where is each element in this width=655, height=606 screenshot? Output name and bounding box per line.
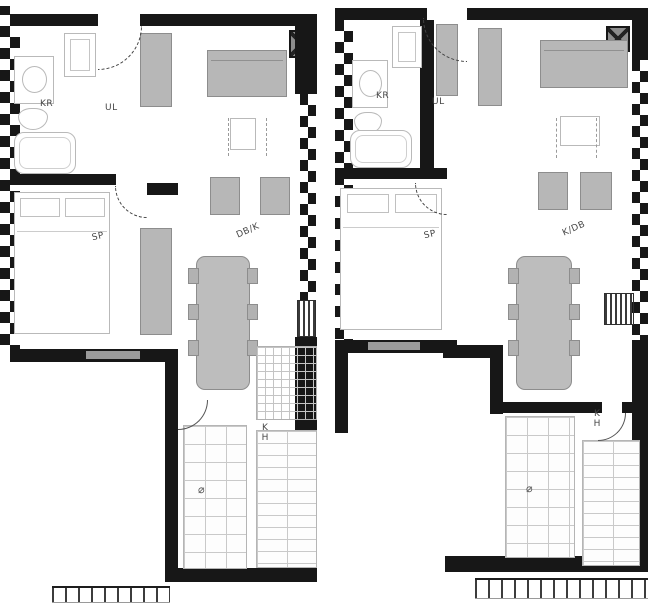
wardrobe [140,33,172,107]
dashed-line [266,118,267,156]
bed [340,188,442,330]
window-strip [632,60,648,340]
wall-top [467,8,632,20]
armchair [210,177,240,215]
wall-right-edge-top [632,8,648,60]
chair [508,304,519,320]
washing-machine [64,33,96,77]
armchair [580,172,612,210]
shower-grid [256,346,317,420]
wall-top [140,14,317,26]
wall-vertical [165,362,178,568]
floor-drain-symbol: ⌀ [198,483,205,496]
dashed-line [556,118,557,158]
wall-bath-top-stub [622,402,648,413]
sink-counter [14,56,54,104]
window-in-wall [86,351,140,359]
balcony-railing [52,586,170,603]
wall-stub [147,183,178,195]
dining-table [196,256,250,390]
door-swing-arc [98,26,142,70]
armchair [260,177,290,215]
coffee-table [230,118,256,150]
floor-drain-symbol: ⌀ [526,482,533,495]
dashed-line [596,118,597,158]
chair [569,304,580,320]
bed [14,192,110,334]
wall-divider [335,168,447,179]
room-label-bath2: KH [592,409,602,429]
dashed-line [228,118,229,156]
wall-divider [10,174,116,185]
chair [508,340,519,356]
balcony-railing [475,578,648,599]
washing-machine [392,26,422,68]
wardrobe [140,228,172,335]
wall [0,6,10,15]
sofa [207,50,287,97]
chair [247,304,258,320]
kitchen-counter-tiled [183,425,247,569]
wall-bath-top [490,402,602,413]
chair [188,268,199,284]
floor-plan: KR UL SP DB/K KH ⌀ [0,0,655,606]
room-label-bathroom: KR [376,91,389,101]
room-label-bath2: KH [260,423,270,443]
sofa [540,40,628,88]
door-swing-arc [115,186,147,218]
window-in-wall [368,342,420,350]
room-label-bathroom: KR [40,99,53,109]
chair [188,304,199,320]
wall-top [335,8,427,20]
bathtub [14,132,76,174]
coffee-table [560,116,600,146]
counter-tiled [582,440,640,566]
room-label-hall: UL [105,103,118,113]
wall-top [10,14,98,26]
room-label-living: DB/K [235,222,261,241]
blanket-line [343,227,439,228]
pillow [347,194,389,213]
chair [247,268,258,284]
counter-tiled [256,430,317,568]
radiator-grille [297,300,316,337]
armchair [538,172,568,210]
room-label-living: K/DB [561,220,587,239]
radiator-grille [604,293,634,325]
room-label-hall: UL [432,97,445,107]
pillow [65,198,105,217]
window-strip [300,94,316,300]
pillow [20,198,60,217]
wall-vertical-stub [335,353,348,433]
cabinet [478,28,502,106]
kitchen-counter-tiled [505,416,575,558]
chair [569,268,580,284]
chair [508,268,519,284]
wall-right-top [295,14,317,94]
chair [188,340,199,356]
chair [569,340,580,356]
bathtub [350,130,412,168]
dining-table [516,256,572,390]
toilet [18,108,48,130]
door-swing-arc [598,413,626,441]
